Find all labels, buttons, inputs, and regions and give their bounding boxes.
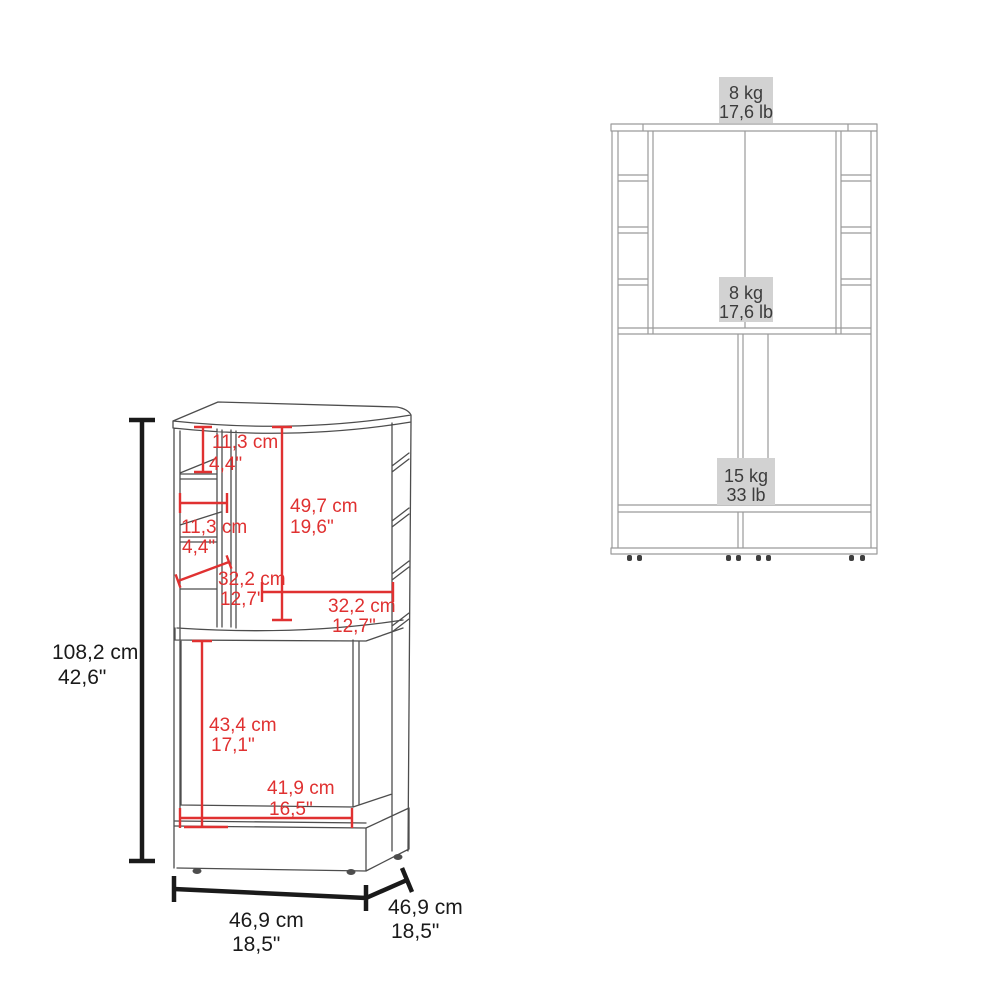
dim-overall-depth: 46,9 cm 18,5" bbox=[366, 868, 463, 943]
dimension-value-in: 4,4" bbox=[182, 537, 215, 558]
front-view: 8 kg 17,6 lb 8 kg 17,6 lb 15 kg 33 lb bbox=[611, 77, 877, 561]
dim-side-shelf-width: 11,3 cm 4,4" bbox=[180, 493, 247, 558]
dimension-line bbox=[180, 808, 352, 828]
cabinet-foot bbox=[627, 555, 632, 561]
dimension-value-cm: 11,3 cm bbox=[181, 517, 247, 538]
furniture-dimension-diagram: 11,3 cm 4,4" 11,3 cm 4,4" 32,2 cm 12,7" … bbox=[0, 0, 1000, 1000]
capacity-lb: 33 lb bbox=[726, 485, 765, 505]
dimension-value-cm: 11,3 cm bbox=[212, 432, 278, 453]
dimension-value-cm: 46,9 cm bbox=[229, 909, 304, 932]
dimension-value-in: 4,4" bbox=[209, 454, 242, 475]
diagram-canvas: 11,3 cm 4,4" 11,3 cm 4,4" 32,2 cm 12,7" … bbox=[0, 0, 1000, 1000]
weight-label-lower-cabinet: 15 kg 33 lb bbox=[717, 458, 775, 505]
dimension-value-cm: 32,2 cm bbox=[218, 569, 286, 590]
capacity-kg: 8 kg bbox=[729, 83, 763, 103]
cabinet-foot bbox=[347, 869, 356, 875]
dimension-line bbox=[174, 876, 366, 911]
perspective-view: 11,3 cm 4,4" 11,3 cm 4,4" 32,2 cm 12,7" … bbox=[52, 402, 463, 956]
dim-lower-compartment-height: 43,4 cm 17,1" bbox=[184, 641, 277, 827]
dimension-value-in: 16,5" bbox=[269, 799, 313, 820]
cabinet-foot bbox=[394, 854, 403, 860]
dimension-value-cm: 43,4 cm bbox=[209, 715, 277, 736]
cabinet-foot bbox=[766, 555, 771, 561]
capacity-kg: 15 kg bbox=[724, 466, 768, 486]
dimension-value-in: 12,7" bbox=[220, 589, 264, 610]
capacity-kg: 8 kg bbox=[729, 283, 763, 303]
cabinet-foot bbox=[193, 868, 202, 874]
capacity-lb: 17,6 lb bbox=[719, 102, 773, 122]
capacity-lb: 17,6 lb bbox=[719, 302, 773, 322]
dim-overall-width: 46,9 cm 18,5" bbox=[174, 876, 366, 956]
dimension-value-in: 12,7" bbox=[332, 616, 376, 637]
cabinet-foot bbox=[756, 555, 761, 561]
dim-lower-compartment-width: 41,9 cm 16,5" bbox=[180, 778, 352, 828]
dimension-value-cm: 41,9 cm bbox=[267, 778, 335, 799]
dim-side-shelf-depth: 32,2 cm 12,7" bbox=[176, 555, 286, 610]
dimension-value-in: 17,1" bbox=[211, 735, 255, 756]
dimension-value-cm: 108,2 cm bbox=[52, 641, 138, 664]
cabinet-foot bbox=[849, 555, 854, 561]
dimension-value-cm: 46,9 cm bbox=[388, 896, 463, 919]
dim-overall-height: 108,2 cm 42,6" bbox=[52, 420, 155, 861]
dimension-value-in: 42,6" bbox=[58, 666, 106, 689]
dimension-value-cm: 32,2 cm bbox=[328, 596, 396, 617]
weight-label-top-surface: 8 kg 17,6 lb bbox=[719, 77, 773, 123]
dimension-value-cm: 49,7 cm bbox=[290, 496, 358, 517]
cabinet-foot bbox=[726, 555, 731, 561]
dimension-value-in: 18,5" bbox=[391, 920, 439, 943]
dimension-value-in: 18,5" bbox=[232, 933, 280, 956]
dimension-line bbox=[366, 868, 412, 898]
cabinet-foot bbox=[860, 555, 865, 561]
dim-top-shelf-height: 11,3 cm 4,4" bbox=[194, 427, 278, 475]
dimension-value-in: 19,6" bbox=[290, 517, 334, 538]
weight-label-middle-shelf: 8 kg 17,6 lb bbox=[719, 277, 773, 322]
cabinet-foot bbox=[736, 555, 741, 561]
dimension-line bbox=[180, 493, 227, 513]
cabinet-foot bbox=[637, 555, 642, 561]
